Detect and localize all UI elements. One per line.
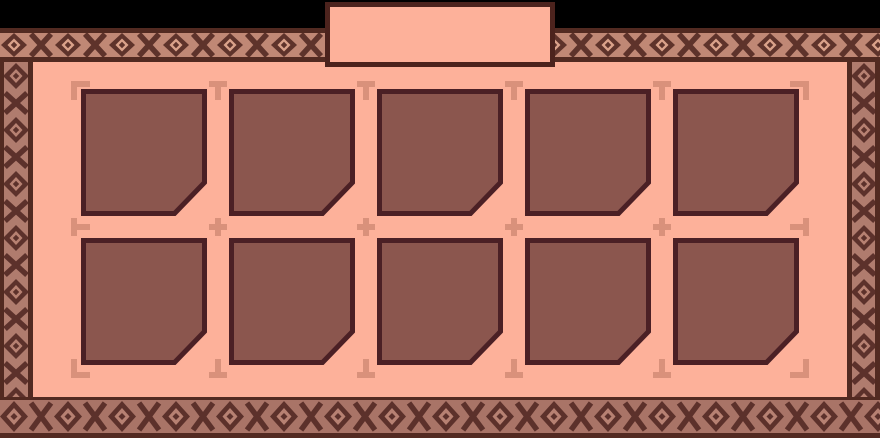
slot-frame-icon [673, 89, 799, 216]
slot-frame-icon [377, 89, 503, 216]
item-slot-r2c4[interactable] [525, 238, 651, 365]
slot-frame-icon [377, 238, 503, 365]
grid-marker-t-icon [652, 81, 672, 101]
grid-marker-c-icon [356, 217, 376, 237]
slot-frame-icon [81, 89, 207, 216]
slot-frame-icon [229, 238, 355, 365]
item-slot-r1c5[interactable] [673, 89, 799, 216]
diamond-pattern-bottom-icon [0, 400, 880, 433]
slot-frame-icon [81, 238, 207, 365]
grid-marker-b-icon [652, 358, 672, 378]
game-screen: { "window": { "width": 880, "height": 43… [0, 0, 880, 438]
grid-marker-t-icon [208, 81, 228, 101]
item-slot-r2c5[interactable] [673, 238, 799, 365]
grid-marker-c-icon [504, 217, 524, 237]
inventory-panel [33, 62, 847, 397]
item-slot-r1c4[interactable] [525, 89, 651, 216]
item-slot-r1c3[interactable] [377, 89, 503, 216]
grid-marker-b-icon [208, 358, 228, 378]
slot-frame-icon [673, 238, 799, 365]
diamond-pattern-right-icon [852, 62, 875, 397]
item-slot-r2c1[interactable] [81, 238, 207, 365]
slot-frame-icon [525, 89, 651, 216]
frame-border-left [0, 62, 33, 397]
item-slot-r1c2[interactable] [229, 89, 355, 216]
grid-marker-c-icon [208, 217, 228, 237]
grid-marker-b-icon [356, 358, 376, 378]
diamond-pattern-left-icon [4, 62, 28, 397]
grid-marker-t-icon [504, 81, 524, 101]
grid-marker-c-icon [652, 217, 672, 237]
grid-marker-b-icon [504, 358, 524, 378]
frame-border-right [847, 62, 880, 397]
item-slot-r2c2[interactable] [229, 238, 355, 365]
slot-frame-icon [229, 89, 355, 216]
item-slot-r2c3[interactable] [377, 238, 503, 365]
title-tab [325, 2, 555, 67]
grid-marker-r-icon [789, 217, 809, 237]
frame-border-bottom [0, 397, 880, 438]
grid-marker-t-icon [356, 81, 376, 101]
slot-frame-icon [525, 238, 651, 365]
item-slot-r1c1[interactable] [81, 89, 207, 216]
grid-marker-l-icon [71, 217, 91, 237]
panel-frame [0, 0, 880, 438]
